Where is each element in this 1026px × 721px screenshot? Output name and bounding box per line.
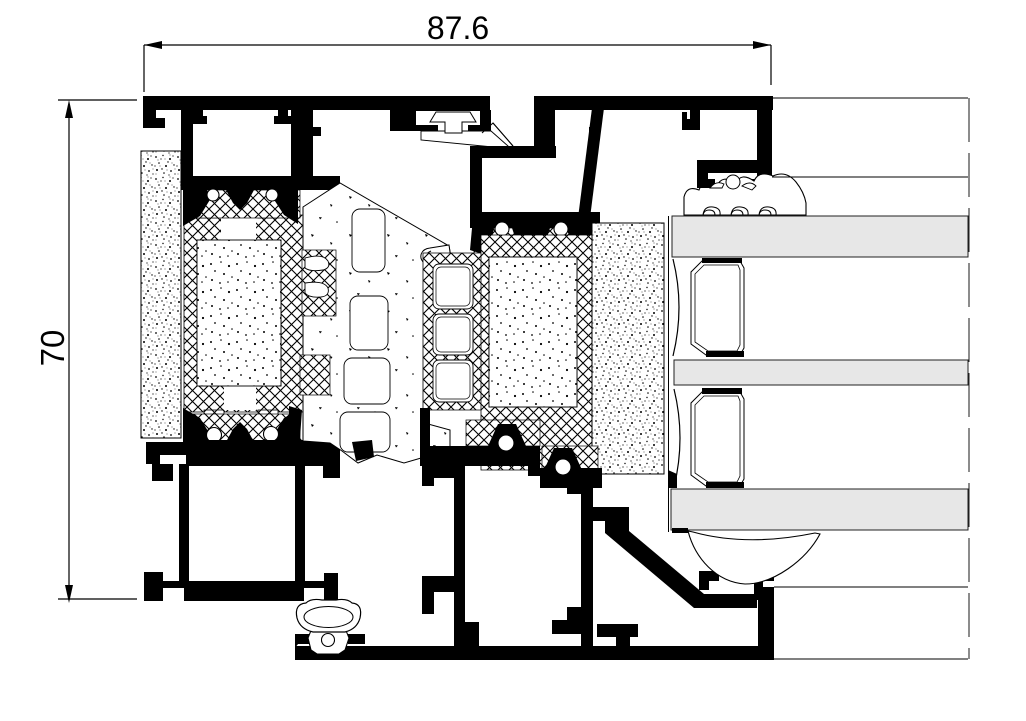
svg-text:70: 70 bbox=[34, 330, 71, 367]
svg-text:87.6: 87.6 bbox=[427, 10, 489, 46]
